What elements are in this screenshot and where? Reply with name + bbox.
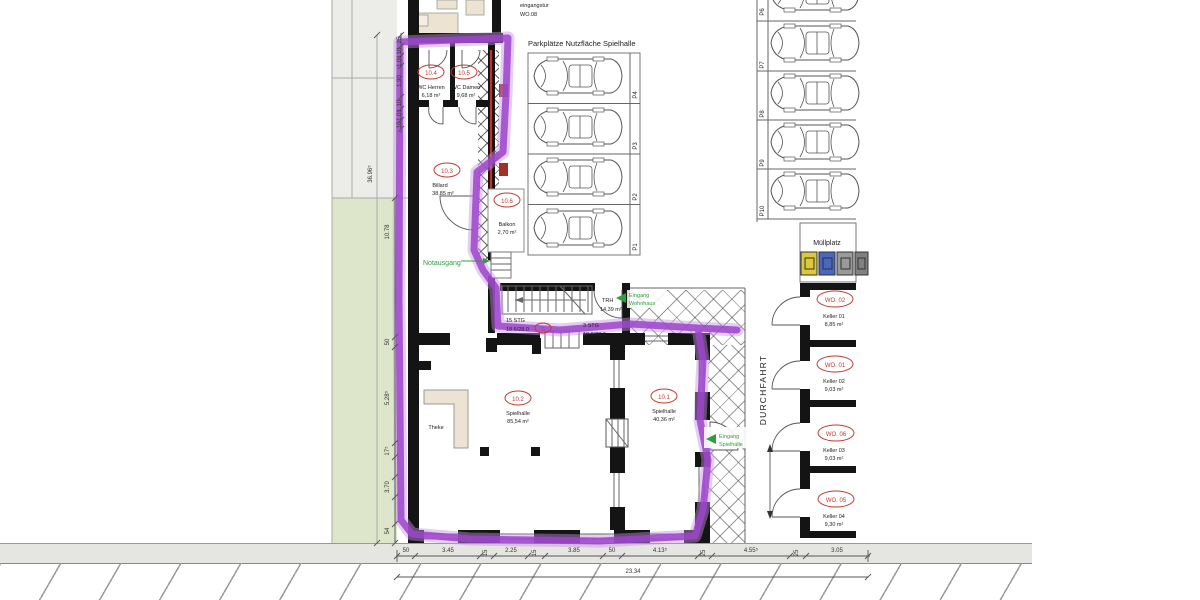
hall-entrance-label-1: Eingang <box>719 434 739 440</box>
dim-label: 3.45 <box>442 548 454 554</box>
car-icon <box>771 123 859 161</box>
dim-label: 50 <box>403 548 410 554</box>
house-entrance-arrow-icon <box>616 293 626 303</box>
cellar-unit: WO. 05 <box>826 498 847 504</box>
counter-label: Theke <box>428 425 443 431</box>
room-id: 10.3 <box>441 169 453 175</box>
dim-label: 25 <box>397 36 403 43</box>
room-area: 6,18 m² <box>422 93 441 99</box>
dim-total-label: 23.34 <box>625 569 641 575</box>
waste-bin-dark-icon <box>855 252 868 275</box>
dim-label: 15 <box>532 549 538 556</box>
stall-label: P7 <box>760 61 766 69</box>
room-id: 10.1 <box>658 395 670 401</box>
dim-label: 25 <box>794 549 800 556</box>
emergency-exit-label: Notausgang <box>423 260 461 267</box>
dim-label: 4.55⁵ <box>744 547 759 554</box>
room-id: 10.2 <box>512 397 524 403</box>
dim-label: 1.01 <box>397 109 403 121</box>
room-id: 10.6 <box>501 199 513 205</box>
parking-main-area <box>528 53 640 255</box>
dim-label: 54 <box>385 527 391 534</box>
room-name: Billard <box>432 183 447 189</box>
house-entrance-label-1: Eingang <box>629 293 649 299</box>
car-icon <box>534 108 622 146</box>
stairs-main-dim: 18.6/28.0 <box>506 327 529 333</box>
cellar-unit: WO. 06 <box>826 432 847 438</box>
cellar-room: Keller 03 <box>823 448 845 454</box>
floor-plan-canvas: eingangstur WO.08 Parkplätze Nutzfläche … <box>0 0 1200 600</box>
stall-label: P6 <box>760 8 766 16</box>
cellar-area: 9,03 m² <box>825 456 844 462</box>
upper-unit-door-label: eingangstur <box>520 3 549 9</box>
dim-label: 4.13⁵ <box>653 547 668 554</box>
upper-apartment-furniture <box>414 0 484 37</box>
upper-unit-id: WO.08 <box>520 12 537 18</box>
stair-badge: G <box>541 327 545 333</box>
hall-entrance-label-2: Spielhalle <box>719 442 743 448</box>
stairs-small-dim: 18.6/28.0 <box>583 332 606 338</box>
waste-bin-blue-icon <box>819 252 835 275</box>
stairwell-area: 14,39 m² <box>600 307 622 313</box>
stall-label: P9 <box>760 159 766 167</box>
dim-label: 5.28⁵ <box>384 390 391 405</box>
stall-label: P1 <box>633 243 639 251</box>
stairwell-label: TRH <box>602 298 613 304</box>
cellar-area: 8,85 m² <box>825 322 844 328</box>
room-name: Spielhalle <box>652 409 676 415</box>
cellar-room: Keller 04 <box>823 514 845 520</box>
waste-label: Müllplatz <box>813 240 841 247</box>
car-icon <box>534 158 622 196</box>
room-id: 10.4 <box>425 71 437 77</box>
room-area: 40,36 m² <box>653 417 675 423</box>
counter-shape <box>424 390 468 448</box>
plan-linework: eingangstur WO.08 Parkplätze Nutzfläche … <box>0 0 1200 600</box>
waste-bin-gray-icon <box>837 252 853 275</box>
dim-label: 50 <box>385 338 391 345</box>
dim-label: 1.01 <box>397 55 403 67</box>
room-area: 38,85 m² <box>432 191 454 197</box>
waste-area <box>800 223 868 282</box>
dim-label: 50 <box>609 548 616 554</box>
waste-bin-yellow-icon <box>801 252 817 275</box>
dim-label: 2.25 <box>505 548 517 554</box>
stall-label: P3 <box>633 142 639 150</box>
dim-label: 25 <box>701 549 707 556</box>
cellar-area: 9,03 m² <box>825 387 844 393</box>
car-icon <box>771 24 859 62</box>
dim-label: 15 <box>483 549 489 556</box>
dim-label: 3.05 <box>831 548 843 554</box>
cellar-area: 9,30 m² <box>825 522 844 528</box>
stall-label: P10 <box>760 205 766 216</box>
room-area: 2,70 m² <box>498 230 517 236</box>
parking-right-area <box>757 0 859 222</box>
stall-label: P4 <box>633 91 639 99</box>
stairs-small-label: 3 STG <box>583 323 599 329</box>
dim-label: 10.78 <box>385 224 391 240</box>
house-entrance-label-2: Wohnhaus <box>629 301 655 307</box>
car-icon <box>771 172 859 210</box>
dim-label: 10 <box>397 47 403 54</box>
dim-label: 3.85 <box>568 548 580 554</box>
stall-label: P2 <box>633 193 639 201</box>
room-name: WC Herren <box>417 85 445 91</box>
car-icon <box>534 57 622 95</box>
dim-label: 36.96⁵ <box>367 165 374 183</box>
room-area: 85,54 m² <box>507 419 529 425</box>
car-icon <box>771 74 859 112</box>
parking-title: Parkplätze Nutzfläche Spielhalle <box>528 39 636 48</box>
dim-label: 10 <box>397 99 403 106</box>
car-icon <box>534 209 622 247</box>
cellar-room: Keller 02 <box>823 379 845 385</box>
cellar-room: Keller 01 <box>823 314 845 320</box>
dim-label: 1.90 <box>397 75 403 87</box>
room-area: 9,68 m² <box>457 93 476 99</box>
cellar-unit: WO. 01 <box>825 363 846 369</box>
driveway-label: DURCHFAHRT <box>758 355 768 425</box>
dim-label: 17⁵ <box>384 446 391 456</box>
stairs-main-label: 15 STG <box>506 318 525 324</box>
room-id: 10.5 <box>458 71 470 77</box>
room-name: Spielhalle <box>506 411 530 417</box>
room-name: Balkon <box>499 222 516 228</box>
dim-label: 10 <box>397 121 403 128</box>
car-icon <box>771 0 859 12</box>
room-name: WC Damen <box>452 85 480 91</box>
cellar-unit: WO. 02 <box>825 298 846 304</box>
dim-label: 3.70 <box>385 481 391 493</box>
stall-label: P8 <box>760 110 766 118</box>
